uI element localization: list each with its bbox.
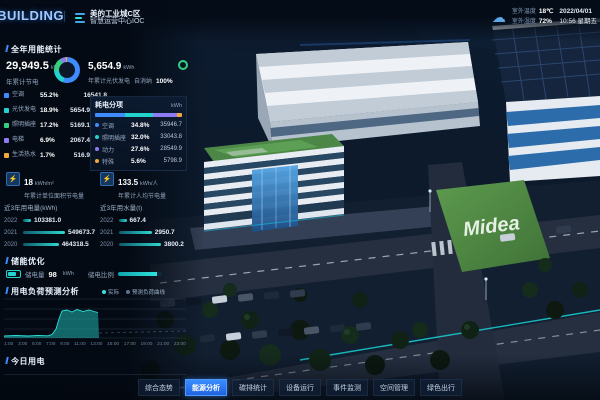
nav-tab-overview[interactable]: 综合态势 bbox=[138, 379, 180, 396]
consumption-row: 照明插座 32.0% 33043.8 bbox=[95, 131, 182, 143]
temp-value: 18℃ bbox=[539, 7, 554, 17]
storage-row: 储电量 98 kWh 储电比例 bbox=[6, 269, 186, 279]
category-color-icon bbox=[95, 147, 99, 151]
pv-ring-icon bbox=[178, 60, 188, 70]
category-label: 照明插座 bbox=[102, 133, 128, 142]
year-label: 2022 bbox=[100, 218, 116, 224]
category-label: 动力 bbox=[102, 145, 128, 154]
x-tick: 1:00 bbox=[4, 342, 13, 347]
pv-value: 5,654.9 bbox=[88, 61, 121, 72]
category-color-icon bbox=[4, 153, 9, 158]
category-color-icon bbox=[95, 135, 99, 139]
kpi-label: 年累计单位面积节电量 bbox=[24, 191, 84, 200]
weather-widget: ☁ 室外温度 18℃ 室外湿度 72% 2022/04/01 10:56 星期五 bbox=[492, 7, 597, 28]
ioc-dashboard: Midea bbox=[0, 0, 600, 400]
breakdown-row-elevator: 电梯 6.9% 2067.4 bbox=[4, 133, 90, 148]
breakdown-row-pv: 光伏发电 18.9% 5654.9 bbox=[4, 103, 90, 118]
charge-label: 储电量 bbox=[25, 269, 45, 279]
today-electricity-title: 今日用电 bbox=[6, 356, 45, 367]
storage-ratio-bar bbox=[118, 272, 162, 276]
category-percent: 17.2% bbox=[40, 122, 65, 129]
category-percent: 34.8% bbox=[131, 122, 154, 129]
pv-self-value: 100% bbox=[156, 78, 173, 85]
x-tick: 23:00 bbox=[174, 342, 186, 347]
category-value: 33043.8 bbox=[157, 134, 182, 140]
category-color-icon bbox=[4, 138, 9, 143]
charge-unit: kWh bbox=[63, 271, 74, 277]
consumption-row: 动力 27.6% 28549.9 bbox=[95, 143, 182, 155]
donut-hole bbox=[59, 62, 75, 78]
kpi-value: 133.5 bbox=[118, 178, 138, 187]
date: 2022/04/01 bbox=[559, 7, 597, 17]
category-value: 28549.9 bbox=[157, 146, 182, 152]
annual-energy-title: 全年用能统计 bbox=[6, 44, 62, 55]
category-label: 照明插座 bbox=[12, 122, 37, 129]
load-forecast-title: 用电负荷预测分析 bbox=[6, 286, 79, 297]
category-label: 空调 bbox=[102, 121, 128, 130]
category-value: 516.9 bbox=[68, 152, 90, 159]
bar-row: 2021 2950.7 bbox=[100, 229, 188, 236]
cloud-icon: ☁ bbox=[492, 10, 506, 24]
bar-row: 2021 549673.7 bbox=[4, 229, 96, 236]
category-percent: 55.2% bbox=[40, 92, 65, 99]
x-tick: 11:00 bbox=[74, 342, 86, 347]
actual-load-area bbox=[4, 310, 99, 339]
breakdown-row-hotwater: 生活热水 1.7% 516.9 bbox=[4, 148, 90, 163]
lightning-icon: ⚡ bbox=[100, 172, 114, 186]
ioc-name: 智慧运营中心IOC bbox=[90, 18, 144, 27]
ibuilding-logo: iBUILDING bbox=[0, 8, 64, 23]
saving-label: 年累计节电 bbox=[6, 76, 62, 86]
platform-title: 美的工业城C区 智慧运营中心IOC bbox=[90, 9, 144, 27]
bar-row: 2020 464318.5 bbox=[4, 241, 96, 248]
bar-segment bbox=[125, 113, 153, 117]
category-label: 电梯 bbox=[12, 137, 37, 144]
year-label: 2021 bbox=[100, 230, 116, 236]
x-tick: 15:00 bbox=[107, 342, 119, 347]
category-value: 35946.7 bbox=[157, 122, 182, 128]
x-tick: 21:00 bbox=[157, 342, 169, 347]
x-tick: 17:00 bbox=[124, 342, 136, 347]
bar bbox=[119, 243, 161, 246]
bar bbox=[23, 219, 31, 222]
legend-label: 实际 bbox=[108, 288, 119, 296]
x-tick: 5:00 bbox=[32, 342, 41, 347]
chart-title: 近3年用电量(kWh) bbox=[4, 202, 96, 212]
nav-tab-carbon[interactable]: 碳排统计 bbox=[232, 379, 274, 396]
consumption-panel: 耗电分项 kWh 空调 34.8% 35946.7 照明插座 32.0% 330… bbox=[90, 96, 187, 171]
legend-forecast: 预测负荷曲线 bbox=[126, 288, 165, 296]
battery-toggle-icon[interactable] bbox=[6, 270, 21, 278]
category-percent: 1.7% bbox=[40, 152, 65, 159]
category-label: 特殊 bbox=[102, 157, 128, 166]
kpi-unit: kWh/人 bbox=[140, 181, 158, 187]
category-value: 5798.9 bbox=[157, 158, 182, 164]
charge-value: 98 bbox=[49, 270, 57, 279]
nav-tab-events[interactable]: 事件监测 bbox=[326, 379, 368, 396]
bar-segment bbox=[95, 113, 125, 117]
category-value: 2067.4 bbox=[68, 137, 90, 144]
saving-value: 29,949.5 bbox=[6, 60, 49, 72]
bar-row: 2022 667.4 bbox=[100, 217, 188, 224]
consumption-row: 空调 34.8% 35946.7 bbox=[95, 119, 182, 131]
x-tick: 7:00 bbox=[46, 342, 55, 347]
kpi-unit: kWh/m² bbox=[35, 181, 54, 187]
water-3yr-chart: 近3年用水量(t) 2022 667.4 2021 2950.7 2020 38… bbox=[100, 202, 188, 248]
chart-title: 近3年用水量(t) bbox=[100, 202, 188, 212]
pv-self-label: 自消纳 bbox=[134, 76, 152, 85]
ratio-label: 储电比例 bbox=[88, 269, 114, 279]
category-color-icon bbox=[4, 123, 9, 128]
bar-value: 103381.0 bbox=[34, 217, 61, 224]
storage-title: 储能优化 bbox=[6, 256, 45, 267]
year-label: 2020 bbox=[100, 242, 116, 248]
bar-value: 549673.7 bbox=[68, 229, 95, 236]
x-tick: 3:00 bbox=[18, 342, 27, 347]
breakdown-row-lighting: 照明插座 17.2% 5169.1 bbox=[4, 118, 90, 133]
nav-tab-energy[interactable]: 能源分析 bbox=[185, 379, 227, 396]
time-weekday: 10:56 星期五 bbox=[559, 17, 597, 27]
humidity-value: 72% bbox=[539, 17, 552, 27]
bar bbox=[119, 219, 127, 222]
bar-row: 2020 3800.2 bbox=[100, 241, 188, 248]
category-color-icon bbox=[95, 159, 99, 163]
bar-value: 464318.5 bbox=[62, 241, 89, 248]
bar bbox=[23, 243, 59, 246]
year-label: 2020 bbox=[4, 242, 20, 248]
year-label: 2021 bbox=[4, 230, 20, 236]
bar-value: 2950.7 bbox=[155, 229, 175, 236]
year-label: 2022 bbox=[4, 218, 20, 224]
brand-mark-icon bbox=[75, 13, 85, 25]
category-label: 生活热水 bbox=[12, 152, 37, 159]
bar bbox=[23, 231, 65, 234]
nav-tab-equipment[interactable]: 设备运行 bbox=[279, 379, 321, 396]
category-percent: 27.6% bbox=[131, 146, 154, 153]
legend-dot-icon bbox=[102, 290, 106, 294]
x-tick: 19:00 bbox=[140, 342, 152, 347]
park-name: 美的工业城C区 bbox=[90, 9, 144, 18]
bar-value: 667.4 bbox=[130, 217, 146, 224]
category-percent: 6.9% bbox=[40, 137, 65, 144]
category-label: 光伏发电 bbox=[12, 107, 37, 114]
category-color-icon bbox=[4, 108, 9, 113]
legend-actual: 实际 bbox=[102, 288, 119, 296]
header-divider: | bbox=[63, 10, 66, 22]
bar-segment bbox=[177, 113, 182, 117]
consumption-row: 特殊 5.6% 5798.9 bbox=[95, 155, 182, 167]
bottom-nav: 综合态势 能源分析 碳排统计 设备运行 事件监测 空间管理 绿色出行 bbox=[138, 379, 462, 396]
nav-tab-space[interactable]: 空间管理 bbox=[373, 379, 415, 396]
forecast-load-line bbox=[99, 331, 186, 333]
kpi-value: 18 bbox=[24, 178, 33, 187]
x-tick: 13:00 bbox=[90, 342, 102, 347]
category-percent: 5.6% bbox=[131, 158, 154, 165]
bar bbox=[119, 231, 152, 234]
legend-dot-icon bbox=[126, 290, 130, 294]
storage-ratio-fill bbox=[118, 272, 158, 276]
forecast-legend: 实际 预测负荷曲线 bbox=[102, 288, 165, 296]
temp-label: 室外温度 bbox=[512, 8, 536, 17]
category-label: 空调 bbox=[12, 92, 37, 99]
nav-tab-green-travel[interactable]: 绿色出行 bbox=[420, 379, 462, 396]
x-tick: 9:00 bbox=[60, 342, 69, 347]
lightning-icon: ⚡ bbox=[6, 172, 20, 186]
kpi-per-person: ⚡ 133.5kWh/人 年累计人均节电量 bbox=[100, 172, 166, 200]
bar-row: 2022 103381.0 bbox=[4, 217, 96, 224]
humidity-label: 室外湿度 bbox=[512, 18, 536, 27]
divider-line bbox=[4, 374, 186, 375]
legend-label: 预测负荷曲线 bbox=[132, 288, 165, 296]
forecast-x-axis: 1:00 3:00 5:00 7:00 9:00 11:00 13:00 15:… bbox=[4, 342, 186, 347]
bar-value: 3800.2 bbox=[164, 241, 184, 248]
category-percent: 18.9% bbox=[40, 107, 65, 114]
pv-label: 年累计光伏发电 bbox=[88, 76, 130, 85]
consumption-unit: kWh bbox=[171, 103, 182, 109]
category-value: 5169.1 bbox=[68, 122, 90, 129]
category-color-icon bbox=[95, 123, 99, 127]
energy-donut bbox=[54, 57, 80, 83]
kpi-per-area: ⚡ 18kWh/m² 年累计单位面积节电量 bbox=[6, 172, 84, 200]
load-forecast-chart bbox=[4, 297, 186, 341]
pv-unit: kWh bbox=[123, 65, 134, 71]
category-percent: 32.0% bbox=[131, 134, 154, 141]
consumption-title: 耗电分项 bbox=[95, 100, 123, 110]
consumption-stacked-bar bbox=[95, 113, 182, 117]
category-value: 5654.9 bbox=[68, 107, 90, 114]
bar-segment bbox=[153, 113, 177, 117]
category-color-icon bbox=[4, 93, 9, 98]
pv-generation-stat: 5,654.9kWh 年累计光伏发电 自消纳 100% bbox=[88, 56, 188, 85]
electricity-3yr-chart: 近3年用电量(kWh) 2022 103381.0 2021 549673.7 … bbox=[4, 202, 96, 248]
kpi-label: 年累计人均节电量 bbox=[118, 191, 166, 200]
